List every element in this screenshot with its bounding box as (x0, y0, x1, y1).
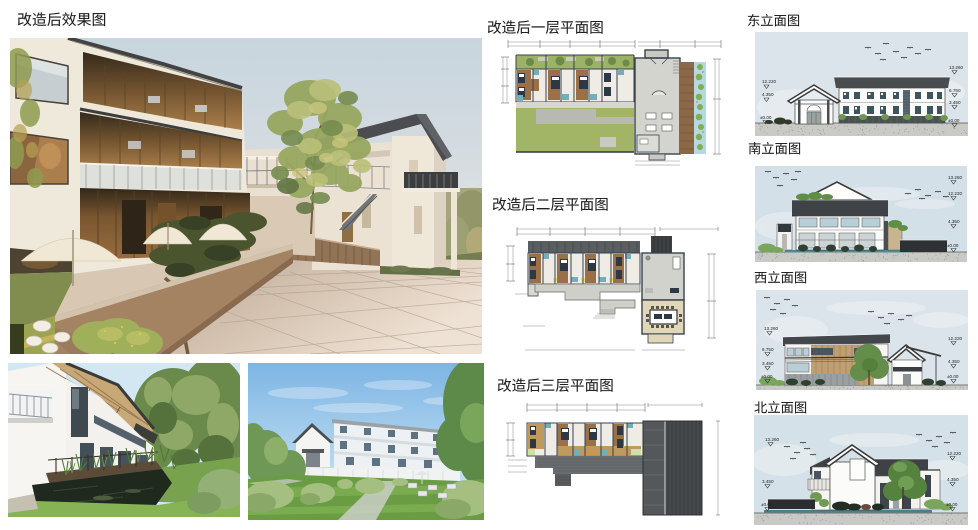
svg-text:6.750: 6.750 (762, 347, 774, 352)
svg-text:13.260: 13.260 (949, 65, 963, 70)
svg-text:3.450: 3.450 (949, 100, 961, 105)
svg-text:±0.00: ±0.00 (947, 243, 959, 248)
svg-text:3.450: 3.450 (762, 479, 774, 484)
svg-text:12.220: 12.220 (947, 451, 961, 456)
svg-text:±0.00: ±0.00 (761, 502, 773, 507)
svg-text:12.220: 12.220 (762, 79, 776, 84)
svg-text:±0.00: ±0.00 (948, 118, 960, 123)
svg-text:12.220: 12.220 (948, 191, 962, 196)
svg-text:13.260: 13.260 (948, 175, 962, 180)
svg-text:±0.00: ±0.00 (760, 115, 772, 120)
svg-text:13.260: 13.260 (765, 437, 779, 442)
svg-text:12.220: 12.220 (948, 336, 962, 341)
svg-text:±0.00: ±0.00 (761, 374, 773, 379)
svg-text:4.350: 4.350 (947, 477, 959, 482)
svg-text:4.350: 4.350 (948, 359, 960, 364)
svg-text:4.350: 4.350 (948, 219, 960, 224)
svg-text:3.450: 3.450 (762, 361, 774, 366)
svg-text:±0.00: ±0.00 (946, 502, 958, 507)
svg-text:±0.00: ±0.00 (947, 374, 959, 379)
svg-text:4.350: 4.350 (762, 92, 774, 97)
svg-text:6.750: 6.750 (949, 88, 961, 93)
svg-text:13.260: 13.260 (764, 326, 778, 331)
